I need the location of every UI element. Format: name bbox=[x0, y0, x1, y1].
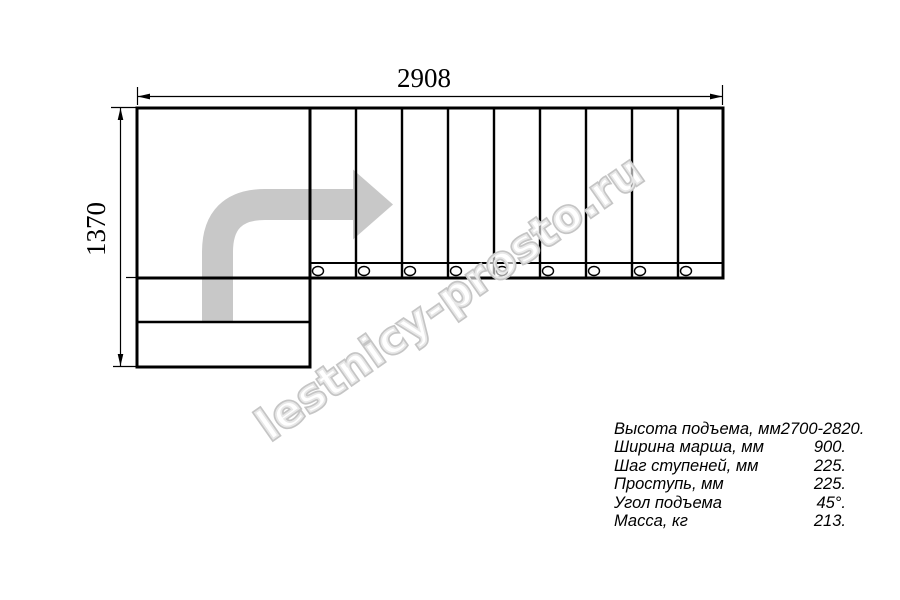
spec-value: 225. bbox=[814, 457, 846, 475]
spec-row-flight-width: Ширина марша, мм 900. bbox=[614, 438, 846, 456]
spec-value: 213. bbox=[814, 512, 846, 530]
spec-value: 900. bbox=[814, 438, 846, 456]
baluster-circle bbox=[635, 267, 646, 276]
spec-label: Масса, кг bbox=[614, 512, 688, 530]
spec-label: Высота подъема, мм bbox=[614, 420, 781, 438]
baluster-circle bbox=[589, 267, 600, 276]
spec-row-rise-height: Высота подъема, мм 2700-2820. bbox=[614, 420, 846, 438]
spec-label: Шаг ступеней, мм bbox=[614, 457, 758, 475]
width-dimension: 2908 bbox=[137, 63, 723, 105]
baluster-circle bbox=[681, 267, 692, 276]
dimension-arrowhead bbox=[138, 94, 151, 100]
spec-value: 2700-2820. bbox=[781, 420, 865, 438]
spec-value: 225. bbox=[814, 475, 846, 493]
spec-label: Ширина марша, мм bbox=[614, 438, 764, 456]
dimension-arrowhead bbox=[118, 108, 124, 120]
baluster-circle bbox=[313, 267, 324, 276]
spec-row-tread: Проступь, мм 225. bbox=[614, 475, 846, 493]
spec-row-step-pitch: Шаг ступеней, мм 225. bbox=[614, 457, 846, 475]
stair-plan-page: 2908 1370 lestnicy-prosto.ru Высота подъ… bbox=[0, 0, 900, 600]
spec-label: Угол подъема bbox=[614, 494, 722, 512]
spec-table: Высота подъема, мм 2700-2820. Ширина мар… bbox=[614, 420, 846, 530]
baluster-circle bbox=[359, 267, 370, 276]
baluster-circle bbox=[405, 267, 416, 276]
spec-label: Проступь, мм bbox=[614, 475, 724, 493]
direction-arrow bbox=[218, 170, 394, 323]
spec-row-mass: Масса, кг 213. bbox=[614, 512, 846, 530]
width-dimension-label: 2908 bbox=[397, 63, 451, 93]
dimension-arrowhead bbox=[710, 94, 723, 100]
baluster-circle bbox=[543, 267, 554, 276]
height-dimension-label: 1370 bbox=[81, 202, 111, 256]
dimension-arrowhead bbox=[118, 354, 124, 366]
height-dimension: 1370 bbox=[81, 108, 137, 367]
spec-row-angle: Угол подъема 45°. bbox=[614, 494, 846, 512]
spec-value: 45°. bbox=[816, 494, 846, 512]
direction-arrow-head bbox=[353, 170, 393, 240]
